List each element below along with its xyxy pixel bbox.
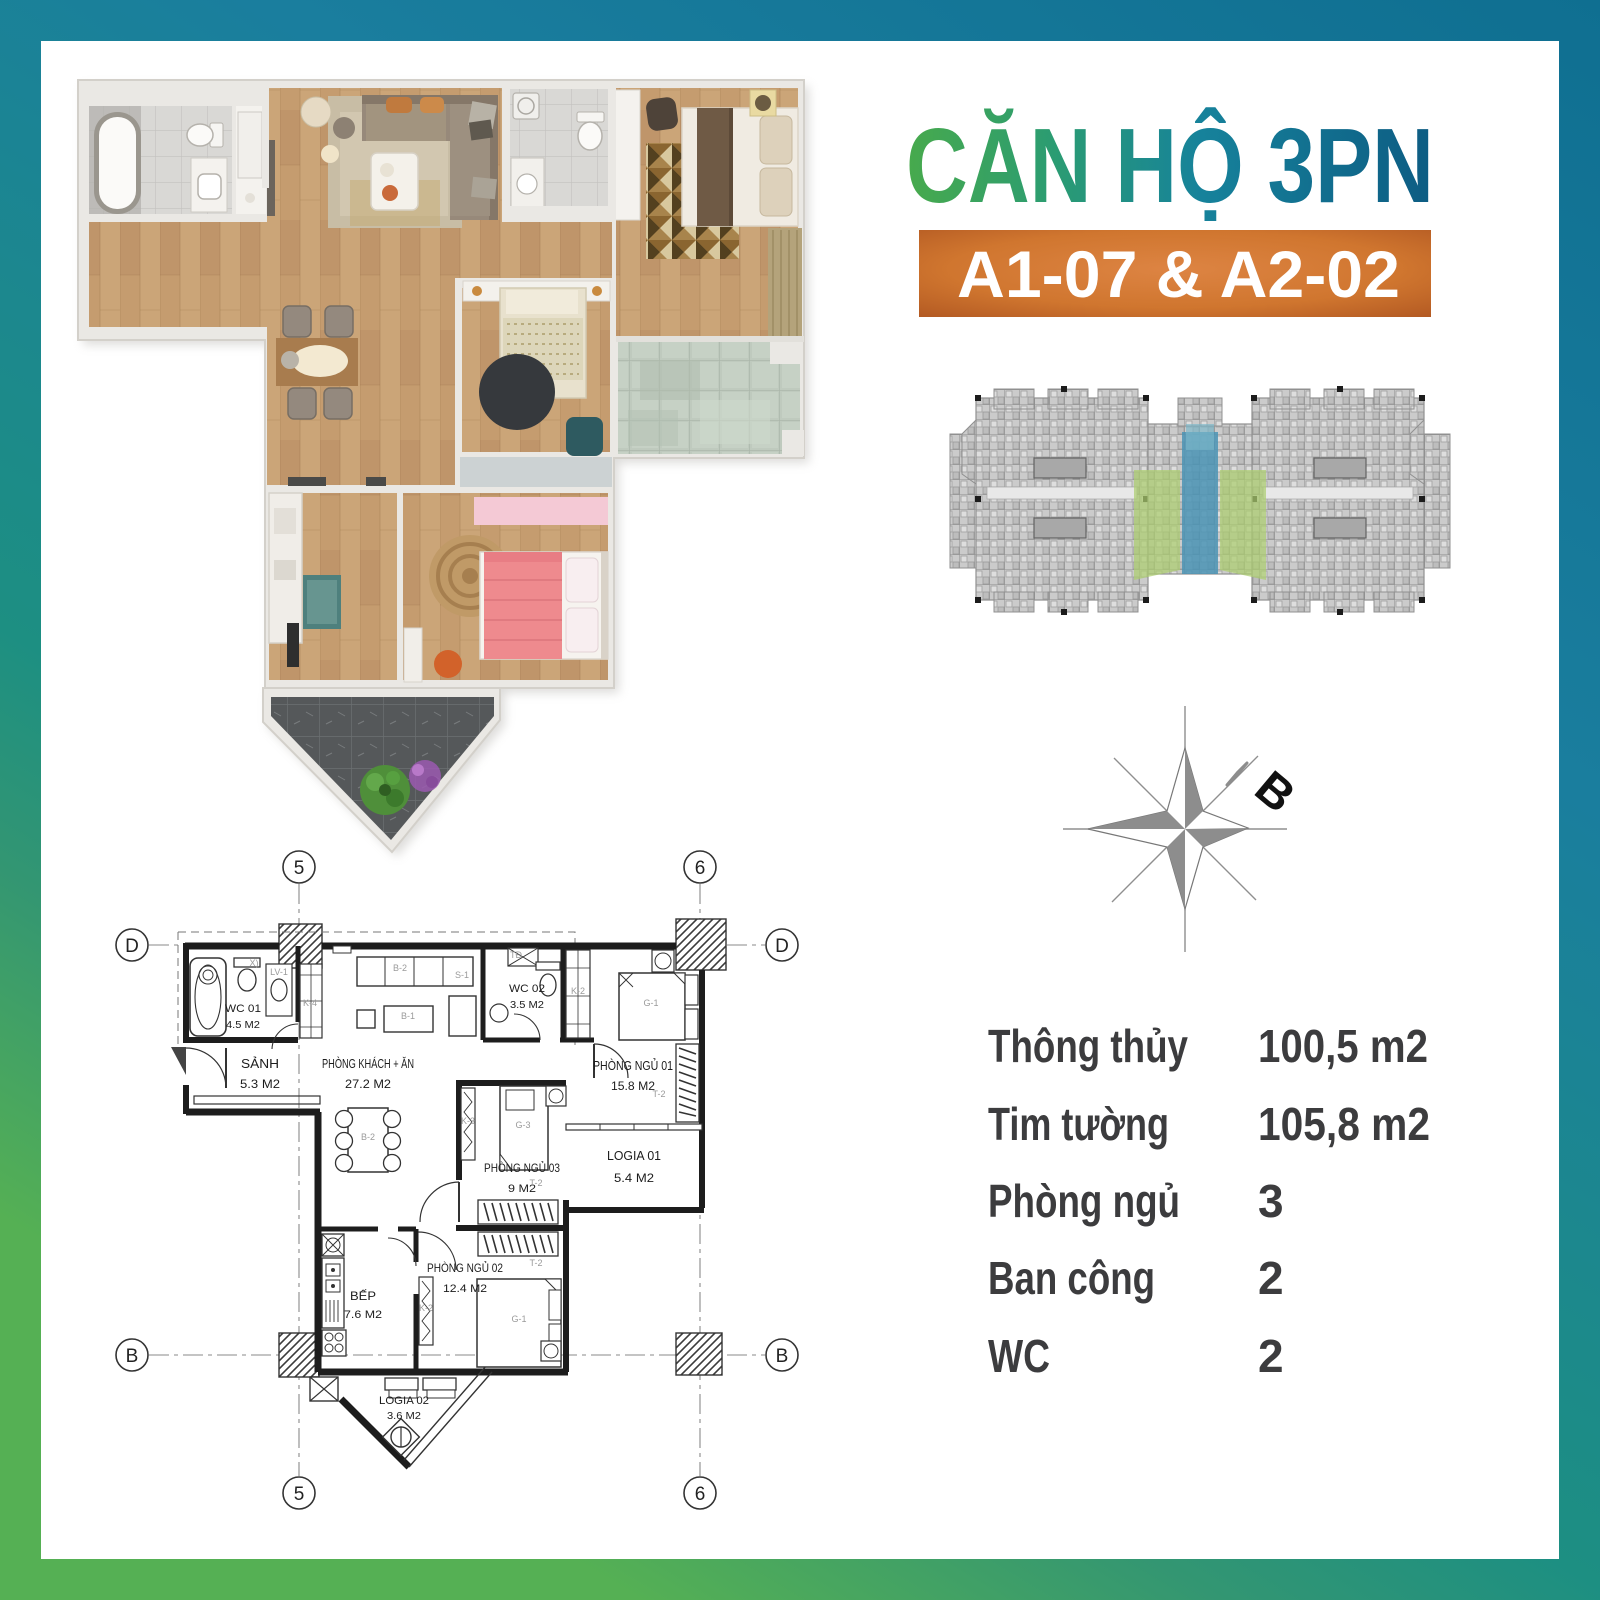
svg-text:LOGIA 01: LOGIA 01 xyxy=(607,1148,661,1163)
svg-text:7.6 M2: 7.6 M2 xyxy=(344,1309,382,1321)
svg-text:K-2: K-2 xyxy=(419,1303,433,1313)
svg-text:K-3: K-3 xyxy=(461,1116,475,1126)
svg-text:B: B xyxy=(776,1346,789,1367)
svg-text:3.6 M2: 3.6 M2 xyxy=(387,1411,421,1422)
svg-text:Tim tường: Tim tường xyxy=(988,1098,1169,1150)
svg-text:G-1: G-1 xyxy=(643,998,658,1008)
svg-text:K-4: K-4 xyxy=(303,998,317,1008)
svg-text:5.4 M2: 5.4 M2 xyxy=(614,1171,654,1185)
svg-text:K-2: K-2 xyxy=(571,986,585,996)
svg-text:4.5 M2: 4.5 M2 xyxy=(226,1020,260,1031)
svg-text:Thông thủy: Thông thủy xyxy=(988,1020,1188,1072)
svg-text:PHÒNG NGỦ 03: PHÒNG NGỦ 03 xyxy=(484,1160,560,1175)
svg-text:T-2: T-2 xyxy=(529,1178,542,1188)
svg-text:SẢNH: SẢNH xyxy=(241,1056,279,1071)
svg-text:27.2 M2: 27.2 M2 xyxy=(345,1077,391,1091)
svg-text:5: 5 xyxy=(294,858,305,879)
svg-text:2: 2 xyxy=(1258,1252,1284,1304)
svg-text:B-1: B-1 xyxy=(401,1011,415,1021)
svg-text:105,8 m2: 105,8 m2 xyxy=(1258,1098,1430,1150)
svg-text:B-2: B-2 xyxy=(361,1132,375,1142)
svg-text:BẾP: BẾP xyxy=(350,1288,376,1303)
svg-text:15.8 M2: 15.8 M2 xyxy=(611,1079,655,1093)
svg-text:D: D xyxy=(125,936,139,957)
svg-text:WC 01: WC 01 xyxy=(225,1003,261,1015)
svg-text:6: 6 xyxy=(695,1484,706,1505)
svg-text:Phòng ngủ: Phòng ngủ xyxy=(988,1175,1180,1227)
svg-text:WC 02: WC 02 xyxy=(509,983,545,995)
svg-text:TĐ: TĐ xyxy=(510,950,522,960)
svg-text:Ban công: Ban công xyxy=(988,1252,1155,1304)
svg-text:X): X) xyxy=(250,958,259,968)
svg-text:5.3 M2: 5.3 M2 xyxy=(240,1077,280,1091)
svg-text:G-1: G-1 xyxy=(511,1314,526,1324)
svg-text:LV-1: LV-1 xyxy=(270,967,288,977)
svg-text:PHÒNG NGỦ 01: PHÒNG NGỦ 01 xyxy=(593,1058,673,1073)
svg-text:PHÒNG KHÁCH + ĂN: PHÒNG KHÁCH + ĂN xyxy=(322,1056,414,1071)
svg-text:T-2: T-2 xyxy=(529,1258,542,1268)
svg-text:PHÒNG NGỦ 02: PHÒNG NGỦ 02 xyxy=(427,1260,503,1275)
svg-text:6: 6 xyxy=(695,858,706,879)
svg-text:CĂN HỘ 3PN: CĂN HỘ 3PN xyxy=(906,107,1434,225)
svg-text:WC: WC xyxy=(988,1330,1050,1382)
svg-text:B: B xyxy=(126,1346,139,1367)
svg-text:T-2: T-2 xyxy=(652,1089,665,1099)
svg-text:LOGIA 02: LOGIA 02 xyxy=(379,1395,429,1407)
svg-text:100,5 m2: 100,5 m2 xyxy=(1258,1020,1428,1072)
svg-text:A1-07 & A2-02: A1-07 & A2-02 xyxy=(957,237,1400,311)
svg-text:D: D xyxy=(775,936,789,957)
svg-text:S-1: S-1 xyxy=(455,970,469,980)
svg-text:G-3: G-3 xyxy=(515,1120,530,1130)
svg-text:2: 2 xyxy=(1258,1330,1284,1382)
svg-text:3: 3 xyxy=(1258,1175,1284,1227)
svg-text:B-2: B-2 xyxy=(393,963,407,973)
svg-text:5: 5 xyxy=(294,1484,305,1505)
svg-text:3.5 M2: 3.5 M2 xyxy=(510,1000,544,1011)
svg-text:12.4 M2: 12.4 M2 xyxy=(443,1283,487,1295)
